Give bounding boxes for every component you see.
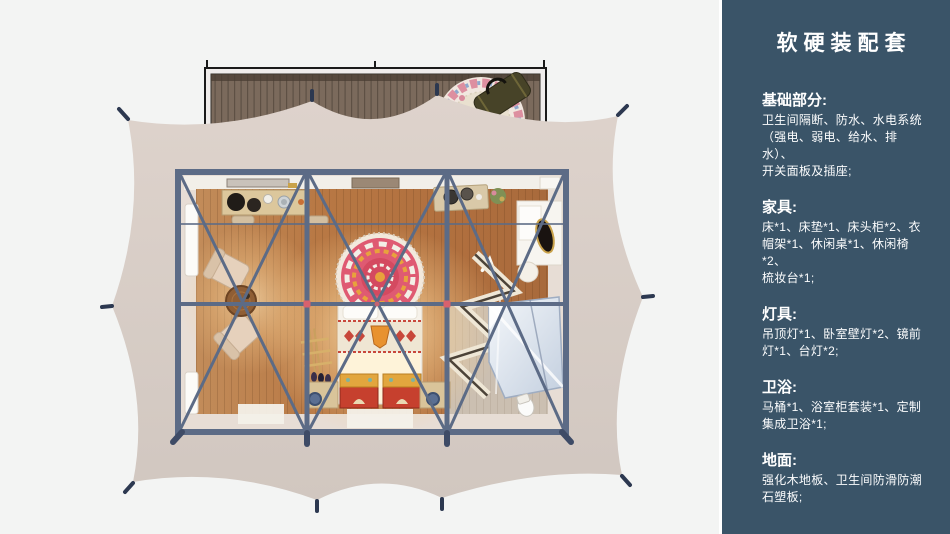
section-lighting: 灯具: 吊顶灯*1、卧室壁灯*2、镜前 灯*1、台灯*2; [762, 305, 926, 360]
hat [247, 198, 261, 212]
hat [227, 193, 245, 211]
ceiling-vent [352, 178, 399, 188]
room [173, 172, 571, 444]
ceiling-vent [227, 179, 289, 187]
red-chest [340, 374, 378, 408]
floorplan-svg [0, 0, 719, 534]
red-chest [383, 374, 421, 408]
section-basics: 基础部分: 卫生间隔断、防水、水电系统 （强电、弱电、给水、排水）、 开关面板及… [762, 91, 926, 180]
section-body: 吊顶灯*1、卧室壁灯*2、镜前 灯*1、台灯*2; [762, 326, 926, 360]
page: 软硬装配套 基础部分: 卫生间隔断、防水、水电系统 （强电、弱电、给水、排水）、… [0, 0, 950, 534]
sidebar: 软硬装配套 基础部分: 卫生间隔断、防水、水电系统 （强电、弱电、给水、排水）、… [719, 0, 950, 534]
section-heading: 灯具: [762, 305, 926, 324]
section-heading: 地面: [762, 451, 926, 470]
window [185, 204, 198, 276]
floorplan-render [0, 0, 719, 534]
section-body: 强化木地板、卫生间防滑防潮 石塑板; [762, 472, 926, 506]
section-heading: 基础部分: [762, 91, 926, 110]
pillow [382, 306, 417, 319]
section-bathroom: 卫浴: 马桶*1、浴室柜套装*1、定制 集成卫浴*1; [762, 378, 926, 433]
floor-mat [347, 409, 413, 428]
stool [232, 216, 254, 224]
section-heading: 卫浴: [762, 378, 926, 397]
section-body: 卫生间隔断、防水、水电系统 （强电、弱电、给水、排水）、 开关面板及插座; [762, 112, 926, 180]
stool [308, 216, 328, 224]
sidebar-title: 软硬装配套 [762, 30, 926, 58]
section-body: 马桶*1、浴室柜套装*1、定制 集成卫浴*1; [762, 399, 926, 433]
plant [490, 188, 506, 204]
section-furniture: 家具: 床*1、床垫*1、床头柜*2、衣 帽架*1、休闲桌*1、休闲椅*2、 梳… [762, 198, 926, 287]
floor-mat [238, 404, 284, 424]
section-heading: 家具: [762, 198, 926, 217]
mug [264, 195, 273, 204]
section-body: 床*1、床垫*1、床头柜*2、衣 帽架*1、休闲桌*1、休闲椅*2、 梳妆台*1… [762, 219, 926, 287]
section-flooring: 地面: 强化木地板、卫生间防滑防潮 石塑板; [762, 451, 926, 506]
